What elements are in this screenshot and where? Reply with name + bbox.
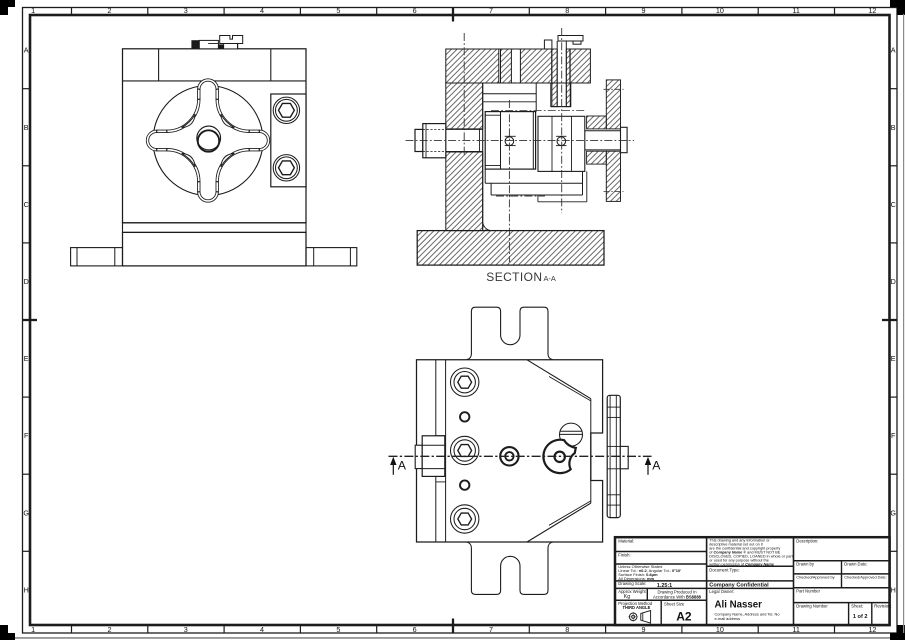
svg-text:C: C bbox=[24, 200, 29, 209]
svg-text:G: G bbox=[23, 508, 29, 517]
svg-text:A: A bbox=[398, 458, 407, 472]
svg-text:5: 5 bbox=[336, 625, 340, 634]
svg-text:E: E bbox=[891, 354, 896, 363]
svg-text:Checked/Approved Date:: Checked/Approved Date: bbox=[844, 576, 886, 580]
svg-text:4: 4 bbox=[260, 625, 264, 634]
svg-text:G: G bbox=[890, 508, 896, 517]
svg-text:D: D bbox=[891, 277, 896, 286]
svg-text:6: 6 bbox=[413, 6, 417, 15]
svg-text:5: 5 bbox=[336, 6, 340, 15]
svg-text:D: D bbox=[24, 277, 29, 286]
svg-text:12: 12 bbox=[868, 6, 876, 15]
svg-text:8: 8 bbox=[565, 6, 569, 15]
svg-text:10: 10 bbox=[716, 6, 724, 15]
svg-text:Material:: Material: bbox=[618, 538, 634, 543]
svg-text:2: 2 bbox=[107, 6, 111, 15]
svg-text:Drawn Date:: Drawn Date: bbox=[844, 562, 867, 567]
svg-text:A: A bbox=[24, 46, 29, 55]
svg-text:SECTION: SECTION bbox=[486, 270, 542, 284]
svg-text:1: 1 bbox=[31, 6, 35, 15]
svg-text:1.25:1: 1.25:1 bbox=[657, 583, 672, 589]
svg-text:Kg: Kg bbox=[624, 594, 630, 600]
svg-text:Revision:: Revision: bbox=[874, 604, 891, 609]
svg-text:Document Type:: Document Type: bbox=[709, 568, 739, 573]
svg-text:3: 3 bbox=[184, 6, 188, 15]
svg-text:1 of 2: 1 of 2 bbox=[853, 614, 868, 620]
svg-text:Description:: Description: bbox=[796, 538, 818, 543]
svg-text:Drawing Scale:: Drawing Scale: bbox=[618, 581, 646, 586]
svg-text:Drawing Number: Drawing Number bbox=[796, 604, 828, 609]
svg-text:written permission of Company: written permission of Company Name bbox=[709, 562, 774, 566]
svg-text:Sheet:: Sheet: bbox=[851, 604, 863, 609]
svg-text:A: A bbox=[891, 46, 896, 55]
svg-text:Accordance With BS8888: Accordance With BS8888 bbox=[653, 595, 702, 600]
svg-text:Legal Owner:: Legal Owner: bbox=[709, 589, 734, 594]
svg-text:6: 6 bbox=[413, 625, 417, 634]
svg-text:A2: A2 bbox=[676, 610, 692, 624]
svg-text:1: 1 bbox=[31, 625, 35, 634]
svg-text:All Dimensions: mm: All Dimensions: mm bbox=[618, 576, 654, 581]
svg-text:E: E bbox=[24, 354, 29, 363]
svg-text:F: F bbox=[891, 431, 896, 440]
svg-text:2: 2 bbox=[107, 625, 111, 634]
svg-text:9: 9 bbox=[642, 6, 646, 15]
svg-text:H: H bbox=[891, 585, 896, 594]
svg-text:Company Confidential: Company Confidential bbox=[709, 583, 769, 589]
svg-text:Sheet Size: Sheet Size bbox=[664, 601, 685, 606]
svg-text:F: F bbox=[24, 431, 29, 440]
svg-text:Part Number: Part Number bbox=[796, 588, 820, 593]
svg-text:Ali Nasser: Ali Nasser bbox=[715, 600, 763, 611]
svg-text:Drawn by: Drawn by bbox=[796, 562, 815, 567]
svg-text:A: A bbox=[652, 458, 661, 472]
svg-text:8: 8 bbox=[565, 625, 569, 634]
svg-text:H: H bbox=[24, 585, 29, 594]
svg-text:7: 7 bbox=[489, 625, 493, 634]
svg-text:B: B bbox=[24, 123, 29, 132]
svg-text:7: 7 bbox=[489, 6, 493, 15]
svg-text:THIRD ANGLE: THIRD ANGLE bbox=[623, 605, 651, 610]
svg-text:B: B bbox=[891, 123, 896, 132]
svg-text:C: C bbox=[891, 200, 896, 209]
svg-text:Finish:: Finish: bbox=[618, 553, 630, 558]
svg-text:Checked/Approved by: Checked/Approved by bbox=[796, 575, 834, 580]
svg-text:A-A: A-A bbox=[544, 274, 556, 283]
svg-text:3: 3 bbox=[184, 625, 188, 634]
svg-text:11: 11 bbox=[792, 6, 799, 15]
svg-text:4: 4 bbox=[260, 6, 264, 15]
svg-text:e-mail address: e-mail address bbox=[715, 616, 741, 621]
svg-text:Approx Weight: Approx Weight bbox=[618, 589, 646, 594]
